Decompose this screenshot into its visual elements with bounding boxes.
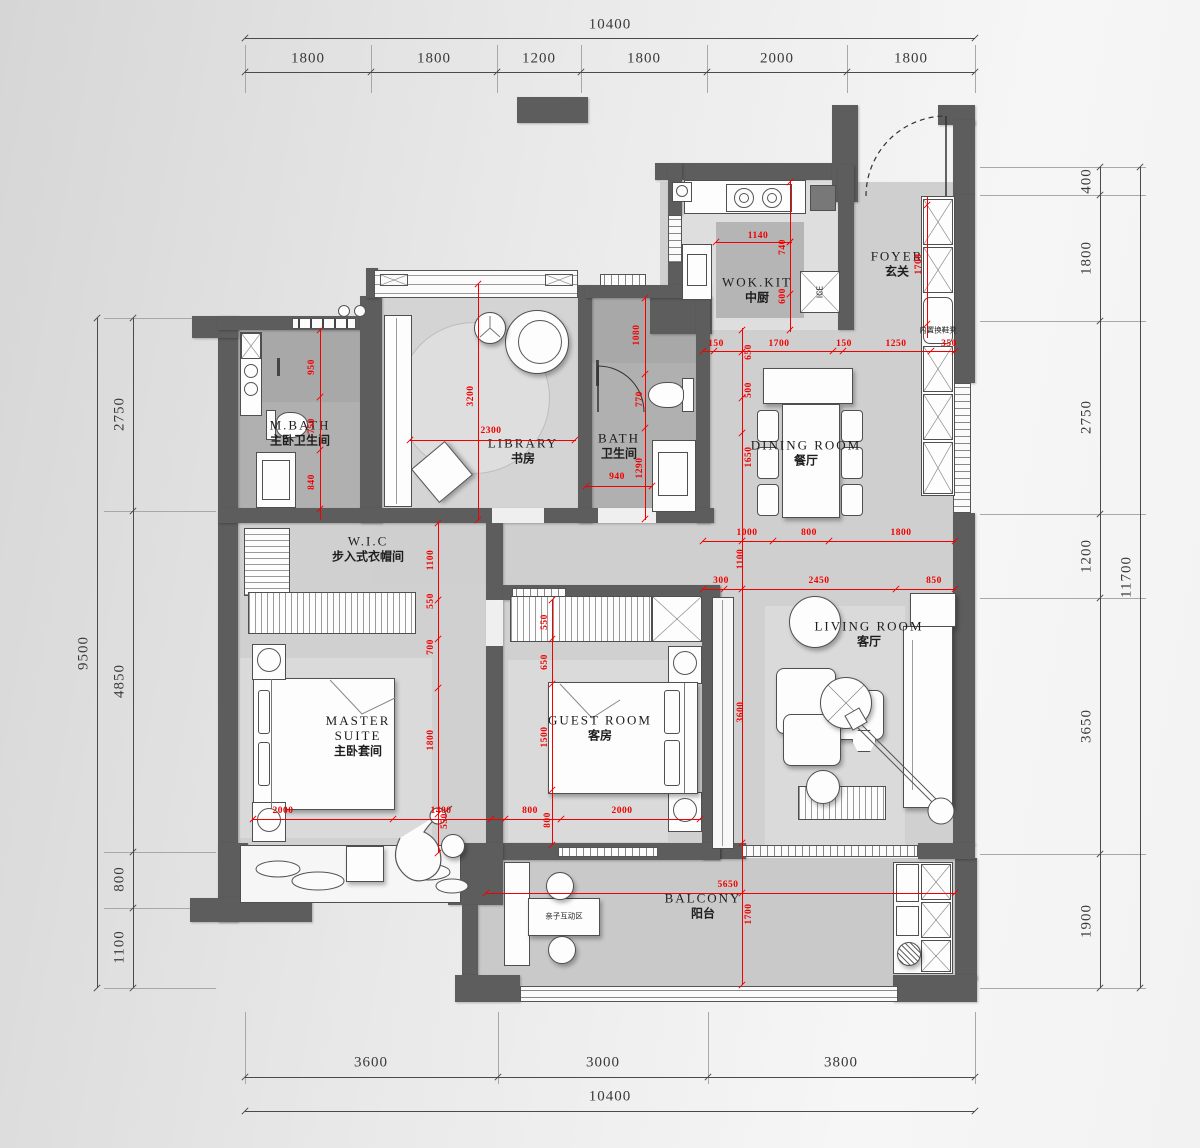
- outer-dim-label: 1900: [1079, 904, 1096, 938]
- outer-dim-label: 1800: [1079, 241, 1096, 275]
- red-dim-label: 1800: [891, 528, 912, 538]
- outer-dim-label: 10400: [589, 17, 632, 34]
- tv-swing-arm: [845, 708, 954, 824]
- dim-line-red: [586, 486, 653, 487]
- red-dim-label: 650: [744, 344, 754, 360]
- red-dim-label: 550: [426, 593, 436, 609]
- room-name-en: GUEST ROOM: [548, 713, 652, 728]
- red-dim-label: 800: [543, 812, 553, 828]
- red-dim-label: 840: [307, 474, 317, 490]
- red-dim-label: 1700: [914, 254, 924, 275]
- red-dim-label: 1800: [426, 730, 436, 751]
- dim-line-red: [253, 819, 701, 820]
- outer-dim-label: 3600: [354, 1055, 388, 1072]
- dim-line-black: [1140, 167, 1141, 988]
- red-dim-label: 770: [635, 391, 645, 407]
- dim-line-red: [790, 180, 791, 332]
- room-name-zh: 主卧套间: [326, 743, 391, 759]
- ice-label: ICE: [816, 286, 825, 298]
- overlay-graphics: [0, 0, 1200, 1148]
- room-name-en: BATH: [598, 431, 640, 446]
- room-label-dining: DINING ROOM餐厅: [751, 438, 861, 469]
- entry-door-arc: [866, 116, 946, 196]
- red-dim-label: 3200: [466, 386, 476, 407]
- outer-dim-label: 3800: [824, 1055, 858, 1072]
- room-label-bath: BATH卫生间: [598, 431, 640, 462]
- outer-dim-label: 3650: [1079, 709, 1096, 743]
- outer-dim-label: 11700: [1119, 556, 1136, 598]
- outer-dim-label: 10400: [589, 1089, 632, 1106]
- outer-dim-label: 400: [1079, 168, 1096, 194]
- outer-dim-label: 1200: [522, 51, 556, 68]
- red-dim-label: 150: [836, 339, 852, 349]
- room-name-en: W.I.C: [332, 534, 404, 549]
- room-label-balcony: BALCONY阳台: [665, 891, 742, 922]
- cushion: [436, 879, 468, 893]
- dim-line-black: [1100, 167, 1101, 988]
- room-name-en: LIVING ROOM: [814, 619, 923, 634]
- outer-dim-label: 9500: [76, 636, 93, 670]
- red-dim-label: 1700: [769, 339, 790, 349]
- red-dim-label: 850: [926, 576, 942, 586]
- red-dim-label: 1250: [886, 339, 907, 349]
- room-name-zh: 卫生间: [598, 446, 640, 462]
- room-name-zh: 客厅: [814, 634, 923, 650]
- red-dim-label: 800: [522, 806, 538, 816]
- outer-dim-label: 2750: [1079, 400, 1096, 434]
- red-dim-label: 1400: [431, 806, 452, 816]
- room-name-zh: 步入式衣帽间: [332, 549, 404, 565]
- room-label-master: MASTER SUITE主卧套间: [326, 713, 391, 759]
- dim-line-red: [486, 893, 956, 894]
- room-name-en: MASTER SUITE: [326, 713, 391, 743]
- outer-dim-label: 2750: [112, 397, 129, 431]
- dim-line-black: [97, 318, 98, 988]
- red-dim-label: 1700: [744, 904, 754, 925]
- dim-line-black: [133, 318, 134, 988]
- floor-plan: 1140740600170015065017001501250350500165…: [0, 0, 1200, 1148]
- outer-dim-label: 1800: [894, 51, 928, 68]
- dim-line-black: [245, 38, 975, 39]
- red-dim-label: 950: [307, 359, 317, 375]
- outer-dim-label: 1800: [627, 51, 661, 68]
- room-name-zh: 阳台: [665, 906, 742, 922]
- cushion: [256, 861, 300, 877]
- red-dim-label: 2300: [481, 426, 502, 436]
- red-dim-label: 5650: [718, 880, 739, 890]
- red-dim-label: 3600: [736, 702, 746, 723]
- red-dim-label: 300: [713, 576, 729, 586]
- outer-dim-label: 1200: [1079, 539, 1096, 573]
- room-label-wic: W.I.C步入式衣帽间: [332, 534, 404, 565]
- outer-dim-label: 1100: [112, 930, 129, 963]
- dim-line-red: [410, 440, 576, 441]
- red-dim-label: 1650: [744, 447, 754, 468]
- red-dim-label: 600: [778, 288, 788, 304]
- outer-dim-label: 3000: [586, 1055, 620, 1072]
- red-dim-label: 550: [540, 614, 550, 630]
- red-dim-label: 1100: [736, 549, 746, 569]
- dim-line-black: [245, 1077, 975, 1078]
- red-dim-label: 2000: [273, 806, 294, 816]
- red-dim-label: 800: [801, 528, 817, 538]
- red-dim-label: 1500: [540, 727, 550, 748]
- room-name-zh: 客房: [548, 728, 652, 744]
- dim-line-black: [245, 1111, 975, 1112]
- dim-line-red: [320, 330, 321, 520]
- outer-dim-label: 4850: [112, 664, 129, 698]
- red-dim-label: 1290: [635, 458, 645, 479]
- kids-zone-label: 亲子互动区: [545, 911, 583, 922]
- room-label-mbath: M.BATH主卧卫生间: [270, 418, 331, 449]
- outer-dim-label: 1800: [291, 51, 325, 68]
- blanket-fold: [330, 680, 395, 714]
- red-dim-label: 1080: [632, 325, 642, 346]
- outer-dim-label: 800: [112, 866, 129, 892]
- red-dim-label: 700: [426, 639, 436, 655]
- shoe-bench-label: 内置换鞋凳: [919, 325, 957, 336]
- room-label-guest: GUEST ROOM客房: [548, 713, 652, 744]
- cushion: [292, 872, 344, 890]
- red-dim-label: 650: [540, 654, 550, 670]
- red-dim-label: 750: [307, 418, 317, 434]
- dim-line-red: [927, 197, 928, 338]
- room-label-living: LIVING ROOM客厅: [814, 619, 923, 650]
- red-dim-label: 1100: [426, 550, 436, 570]
- room-name-zh: 书房: [488, 451, 558, 467]
- red-dim-label: 740: [778, 239, 788, 255]
- table-spoke: [480, 328, 490, 337]
- red-dim-label: 1140: [748, 231, 768, 241]
- red-dim-label: 350: [941, 339, 957, 349]
- red-dim-label: 1000: [737, 528, 758, 538]
- dim-line-red: [478, 284, 479, 520]
- room-name-zh: 餐厅: [751, 453, 861, 469]
- room-name-en: M.BATH: [270, 418, 331, 433]
- dim-line-black: [245, 72, 975, 73]
- red-dim-label: 2450: [809, 576, 830, 586]
- room-name-en: DINING ROOM: [751, 438, 861, 453]
- dim-line-red: [742, 328, 743, 985]
- outer-dim-label: 1800: [417, 51, 451, 68]
- red-dim-label: 150: [708, 339, 724, 349]
- room-name-en: LIBRARY: [488, 436, 558, 451]
- red-dim-label: 940: [609, 472, 625, 482]
- red-dim-label: 2000: [612, 806, 633, 816]
- red-dim-label: 500: [744, 382, 754, 398]
- outer-dim-label: 2000: [760, 51, 794, 68]
- table-spoke: [490, 328, 500, 337]
